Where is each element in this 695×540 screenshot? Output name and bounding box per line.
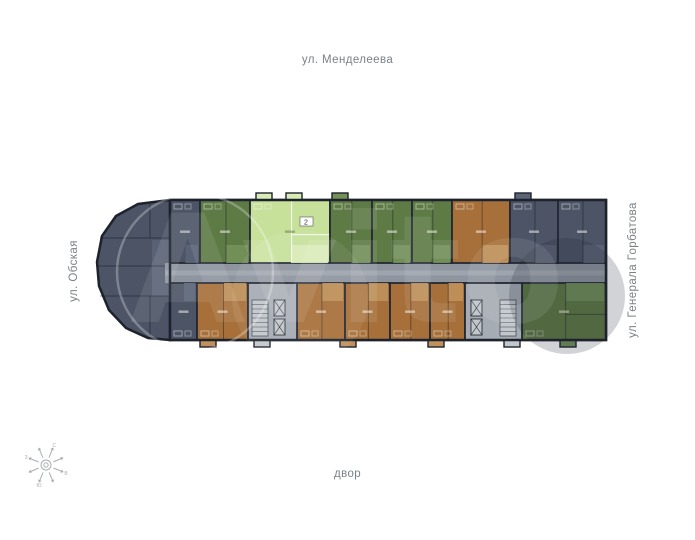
compass-letter: В — [64, 471, 68, 477]
building-floor-plan: 2Avito — [0, 0, 695, 540]
compass-arrow — [53, 468, 61, 471]
floor-plan-page: ул. Менделеева ул. Обская ул. Генерала Г… — [0, 0, 695, 540]
compass-arrow — [40, 472, 43, 480]
compass-letter: С — [53, 443, 57, 449]
compass-arrow — [30, 459, 38, 462]
compass-hub — [41, 460, 51, 470]
compass-arrow — [39, 449, 43, 457]
watermark-text: Avito — [130, 184, 565, 358]
area-label-mark — [577, 231, 587, 233]
compass-rose-icon: СВЮЗ — [22, 440, 70, 488]
compass-letter: З — [25, 455, 28, 461]
compass-letter: Ю — [36, 483, 41, 488]
compass-arrow — [49, 449, 52, 457]
compass-arrow — [53, 458, 61, 462]
compass-arrow — [49, 472, 53, 480]
compass-hub-inner — [44, 463, 48, 467]
compass-arrow — [30, 468, 38, 472]
